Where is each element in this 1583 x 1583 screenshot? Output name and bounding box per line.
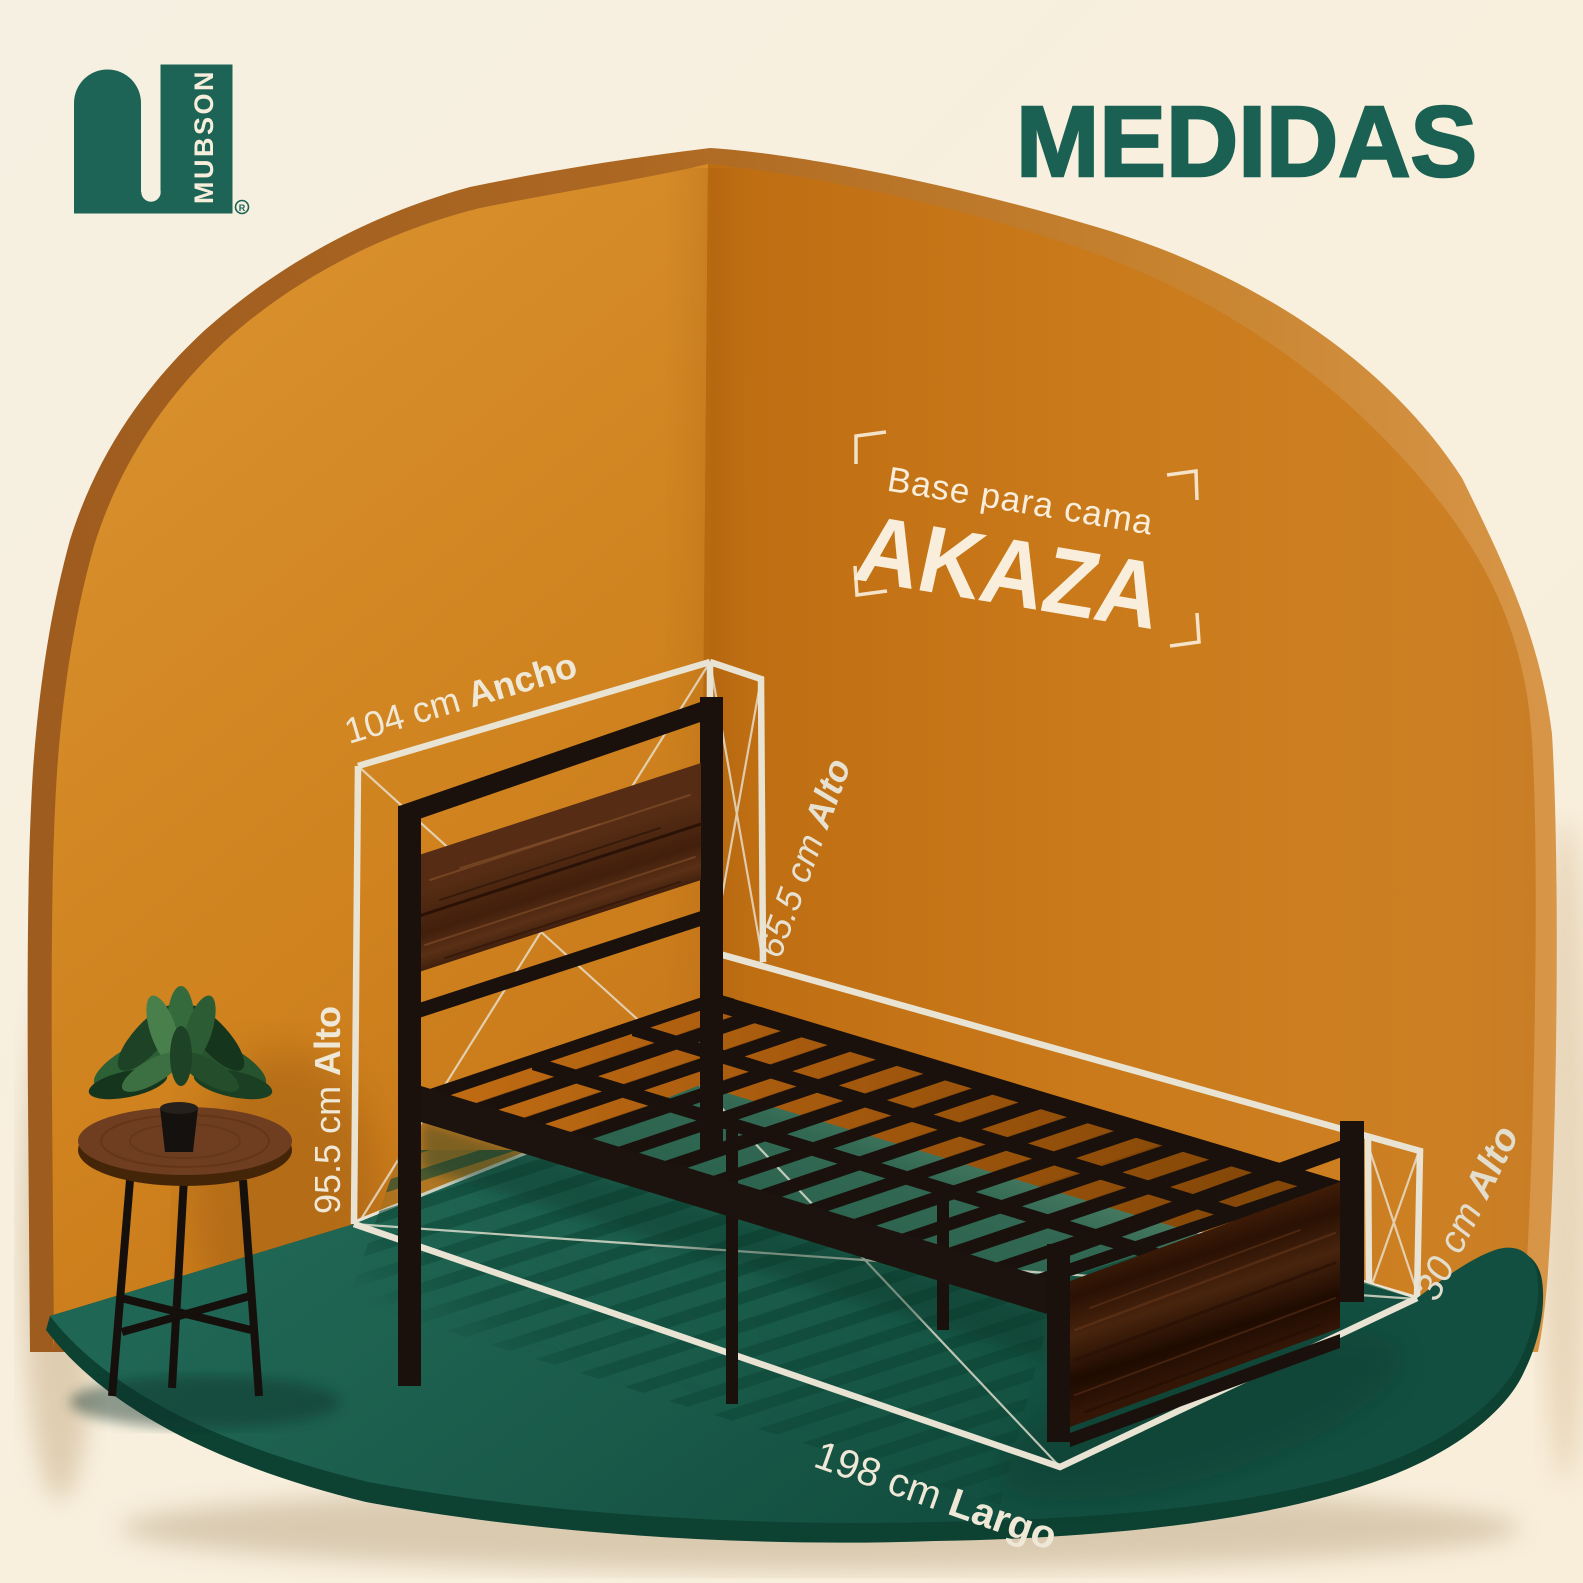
svg-text:MEDIDAS: MEDIDAS xyxy=(1016,86,1477,198)
svg-text:R: R xyxy=(239,203,246,213)
svg-text:95.5 cm Alto: 95.5 cm Alto xyxy=(307,1006,348,1214)
svg-text:MUBSON: MUBSON xyxy=(189,69,219,204)
